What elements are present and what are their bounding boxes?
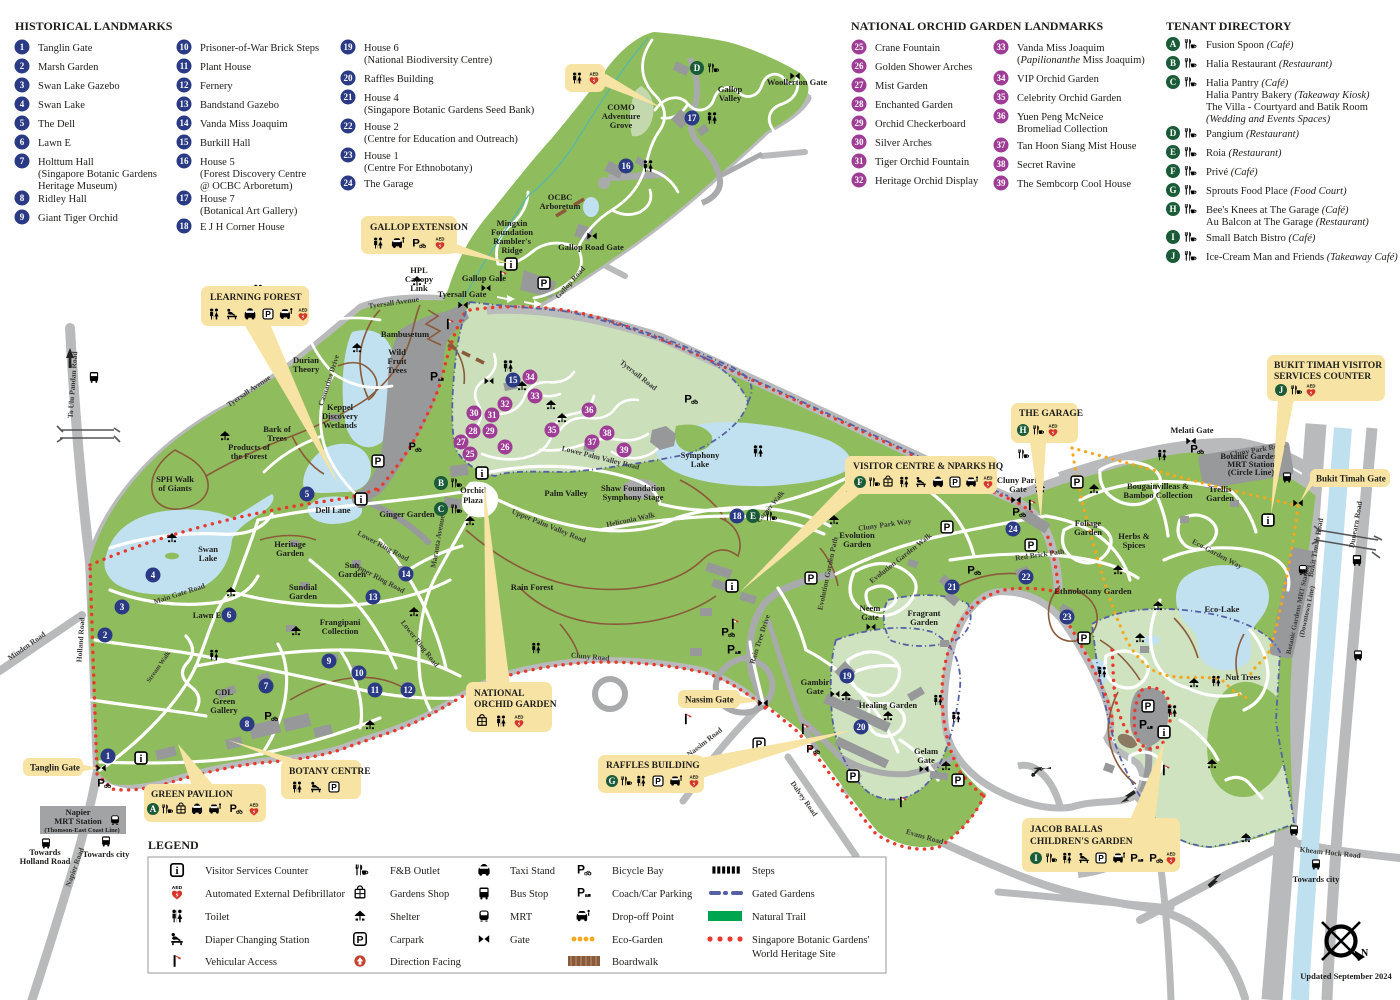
svg-text:Tyersall Gate: Tyersall Gate (438, 289, 487, 299)
svg-text:37: 37 (997, 140, 1007, 150)
svg-text:Direction Facing: Direction Facing (390, 957, 462, 968)
svg-text:12: 12 (404, 685, 414, 695)
svg-text:29: 29 (486, 426, 496, 436)
svg-text:Ridley Hall: Ridley Hall (38, 194, 87, 205)
svg-text:Gardens Shop: Gardens Shop (390, 889, 449, 900)
svg-text:Updated September 2024: Updated September 2024 (1300, 971, 1392, 981)
svg-text:Diaper Changing Station: Diaper Changing Station (205, 935, 310, 946)
svg-text:36: 36 (997, 111, 1007, 121)
svg-text:Gallop Road Gate: Gallop Road Gate (558, 242, 624, 252)
svg-text:24: 24 (344, 178, 354, 188)
svg-text:3: 3 (20, 80, 25, 90)
svg-text:10: 10 (180, 42, 190, 52)
svg-text:7: 7 (264, 681, 269, 691)
svg-text:Plaza: Plaza (463, 495, 484, 505)
svg-text:5: 5 (20, 118, 25, 128)
svg-text:Pangium (Restaurant): Pangium (Restaurant) (1206, 129, 1300, 140)
svg-text:Holland Road: Holland Road (20, 856, 71, 866)
svg-text:(Singapore Botanic Gardens: (Singapore Botanic Gardens (38, 169, 157, 180)
svg-text:(Circle Line): (Circle Line) (1228, 467, 1275, 477)
svg-text:22: 22 (1022, 572, 1032, 582)
svg-text:Raffles Building: Raffles Building (364, 74, 434, 85)
svg-text:N: N (1361, 948, 1369, 959)
svg-text:Towards city: Towards city (83, 849, 130, 859)
svg-text:Visitor Services Counter: Visitor Services Counter (205, 866, 309, 877)
svg-text:Holttum Hall: Holttum Hall (38, 157, 94, 168)
svg-text:39: 39 (997, 178, 1007, 188)
svg-text:Nut Trees: Nut Trees (1225, 672, 1261, 682)
svg-text:25: 25 (466, 449, 476, 459)
svg-text:I: I (1034, 853, 1038, 863)
svg-text:8: 8 (245, 719, 250, 729)
svg-text:J: J (1171, 251, 1176, 261)
svg-text:21: 21 (948, 582, 958, 592)
svg-text:33: 33 (531, 391, 541, 401)
svg-text:Gated Gardens: Gated Gardens (752, 889, 815, 900)
svg-text:SERVICES COUNTER: SERVICES COUNTER (1274, 372, 1371, 382)
svg-text:Vanda Miss Joaquim: Vanda Miss Joaquim (200, 119, 288, 130)
svg-text:House 1: House 1 (364, 151, 399, 162)
svg-text:VIP Orchid Garden: VIP Orchid Garden (1017, 74, 1100, 85)
svg-text:32: 32 (855, 175, 865, 185)
svg-text:Bus Stop: Bus Stop (510, 889, 548, 900)
svg-text:House 6: House 6 (364, 43, 399, 54)
svg-text:17: 17 (180, 193, 190, 203)
svg-text:Prisoner-of-War Brick Steps: Prisoner-of-War Brick Steps (200, 43, 319, 54)
svg-text:MRT: MRT (510, 912, 533, 923)
svg-text:Roia (Restaurant): Roia (Restaurant) (1206, 148, 1282, 159)
svg-text:(National Biodiversity Centre): (National Biodiversity Centre) (364, 55, 493, 66)
svg-text:32: 32 (501, 399, 511, 409)
svg-text:Dell Lane: Dell Lane (315, 505, 350, 515)
svg-text:GREEN PAVILION: GREEN PAVILION (151, 790, 233, 800)
svg-text:C: C (1170, 77, 1177, 87)
svg-text:Vanda Miss Joaquim: Vanda Miss Joaquim (1017, 43, 1105, 54)
svg-text:Eco-Garden: Eco-Garden (612, 935, 663, 946)
svg-text:(Wedding and Events Spaces): (Wedding and Events Spaces) (1206, 114, 1331, 125)
svg-text:7: 7 (20, 156, 25, 166)
svg-text:Automated External Defibrillat: Automated External Defibrillator (205, 889, 345, 900)
svg-text:26: 26 (855, 61, 865, 71)
svg-text:VISITOR CENTRE & NPARKS HQ: VISITOR CENTRE & NPARKS HQ (853, 462, 1003, 472)
svg-text:Crane Fountain: Crane Fountain (875, 43, 941, 54)
svg-text:Swan Lake Gazebo: Swan Lake Gazebo (38, 81, 120, 92)
svg-text:19: 19 (843, 671, 853, 681)
svg-text:37: 37 (588, 437, 598, 447)
svg-text:Singapore Botanic Gardens': Singapore Botanic Gardens' (752, 935, 869, 946)
svg-text:Garden: Garden (289, 591, 317, 601)
svg-text:Tanglin Gate: Tanglin Gate (30, 763, 80, 773)
svg-text:of Giants: of Giants (158, 483, 192, 493)
svg-text:F: F (1170, 166, 1176, 176)
svg-text:34: 34 (526, 372, 536, 382)
svg-text:Trees: Trees (387, 365, 407, 375)
svg-text:Valley: Valley (719, 93, 742, 103)
svg-text:J: J (1279, 385, 1284, 395)
svg-text:Gate: Gate (1009, 484, 1027, 494)
svg-text:16: 16 (180, 156, 190, 166)
svg-text:House 4: House 4 (364, 93, 399, 104)
svg-text:F&B Outlet: F&B Outlet (390, 866, 440, 877)
svg-text:Palm Valley: Palm Valley (544, 488, 588, 498)
svg-text:Bicycle Bay: Bicycle Bay (612, 866, 664, 877)
svg-text:18: 18 (180, 221, 190, 231)
svg-text:38: 38 (997, 159, 1007, 169)
svg-text:12: 12 (180, 80, 190, 90)
svg-text:Garden: Garden (276, 548, 304, 558)
svg-text:@ OCBC Arboretum): @ OCBC Arboretum) (200, 181, 293, 192)
svg-text:Tan Hoon Siang Mist House: Tan Hoon Siang Mist House (1017, 141, 1137, 152)
svg-text:Shelter: Shelter (390, 912, 420, 923)
svg-text:34: 34 (997, 73, 1007, 83)
svg-text:Sprouts Food Place (Food Court: Sprouts Food Place (Food Court) (1206, 186, 1347, 197)
svg-text:Spices: Spices (1123, 540, 1146, 550)
svg-text:I: I (1171, 232, 1175, 242)
svg-text:Melati Gate: Melati Gate (1170, 425, 1213, 435)
svg-text:Theory: Theory (293, 364, 320, 374)
svg-text:13: 13 (180, 99, 190, 109)
svg-text:Garden: Garden (1206, 493, 1234, 503)
svg-text:Towards city: Towards city (1293, 874, 1340, 884)
svg-text:14: 14 (180, 118, 190, 128)
svg-text:Carpark: Carpark (390, 935, 425, 946)
svg-text:LEGEND: LEGEND (148, 838, 199, 852)
svg-text:Ginger Garden: Ginger Garden (379, 509, 435, 519)
svg-text:Healing Garden: Healing Garden (859, 700, 918, 710)
svg-text:(Centre For Ethnobotany): (Centre For Ethnobotany) (364, 163, 473, 174)
svg-text:Celebrity Orchid Garden: Celebrity Orchid Garden (1017, 93, 1122, 104)
svg-text:RAFFLES BUILDING: RAFFLES BUILDING (606, 761, 700, 771)
svg-text:25: 25 (855, 42, 865, 52)
svg-text:Bamboo Collection: Bamboo Collection (1123, 490, 1192, 500)
svg-text:1: 1 (106, 751, 111, 761)
svg-text:ORCHID GARDEN: ORCHID GARDEN (474, 700, 557, 710)
svg-text:Symphony Stage: Symphony Stage (603, 492, 664, 502)
svg-text:Natural Trail: Natural Trail (752, 912, 806, 923)
svg-text:Bee's Knees at The Garage (Caf: Bee's Knees at The Garage (Café) (1206, 205, 1349, 216)
svg-text:Fernery: Fernery (200, 81, 233, 92)
svg-text:Collection: Collection (322, 626, 359, 636)
svg-text:Gallop Gate: Gallop Gate (462, 273, 506, 283)
svg-text:Grove: Grove (610, 120, 633, 130)
svg-text:Swan Lake: Swan Lake (38, 100, 85, 111)
svg-text:Garden: Garden (910, 617, 938, 627)
svg-text:(Singapore Botanic Gardens See: (Singapore Botanic Gardens Seed Bank) (364, 105, 535, 116)
svg-text:NATIONAL: NATIONAL (474, 689, 525, 699)
svg-text:30: 30 (470, 408, 480, 418)
svg-text:(Forest Discovery Centre: (Forest Discovery Centre (200, 169, 306, 180)
svg-text:B: B (438, 478, 444, 488)
svg-text:HISTORICAL LANDMARKS: HISTORICAL LANDMARKS (15, 19, 173, 33)
svg-text:Secret Ravine: Secret Ravine (1017, 160, 1076, 171)
svg-text:17: 17 (688, 113, 698, 123)
svg-text:27: 27 (457, 437, 467, 447)
svg-text:Garden: Garden (1074, 527, 1102, 537)
svg-text:The Dell: The Dell (38, 119, 75, 130)
svg-text:E J H Corner House: E J H Corner House (200, 222, 285, 233)
svg-text:23: 23 (1063, 612, 1073, 622)
svg-text:(Botanical Art Gallery): (Botanical Art Gallery) (200, 206, 298, 217)
svg-text:20: 20 (857, 722, 867, 732)
svg-text:Lawn E: Lawn E (38, 138, 71, 149)
svg-text:16: 16 (622, 161, 632, 171)
svg-text:Toilet: Toilet (205, 912, 229, 923)
svg-text:H: H (1019, 425, 1026, 435)
svg-text:MRT Station: MRT Station (54, 816, 102, 826)
svg-text:Gate: Gate (806, 686, 824, 696)
svg-text:9: 9 (20, 212, 25, 222)
svg-text:B: B (1170, 58, 1176, 68)
svg-text:Eco-Lake: Eco-Lake (1205, 604, 1240, 614)
svg-text:Privé (Café): Privé (Café) (1206, 167, 1258, 178)
svg-text:24: 24 (1009, 524, 1019, 534)
svg-text:Yuen Peng McNeice: Yuen Peng McNeice (1017, 112, 1104, 123)
svg-text:Plant House: Plant House (200, 62, 251, 73)
svg-text:5: 5 (305, 489, 310, 499)
svg-text:15: 15 (509, 375, 519, 385)
svg-text:CHILDREN'S GARDEN: CHILDREN'S GARDEN (1030, 837, 1133, 847)
svg-text:15: 15 (180, 137, 190, 147)
svg-text:10: 10 (355, 668, 365, 678)
svg-text:29: 29 (855, 118, 865, 128)
svg-text:36: 36 (585, 405, 595, 415)
svg-text:4: 4 (151, 570, 156, 580)
svg-text:Link: Link (410, 283, 428, 293)
svg-text:Gallery: Gallery (210, 705, 238, 715)
svg-text:Golden Shower Arches: Golden Shower Arches (875, 62, 972, 73)
svg-text:Arboretum: Arboretum (540, 201, 581, 211)
svg-text:Steps: Steps (752, 866, 775, 877)
svg-text:Coach/Car Parking: Coach/Car Parking (612, 889, 693, 900)
svg-text:11: 11 (180, 61, 189, 71)
svg-text:27: 27 (855, 80, 865, 90)
svg-text:20: 20 (344, 73, 354, 83)
svg-text:19: 19 (344, 42, 354, 52)
svg-text:THE GARAGE: THE GARAGE (1019, 409, 1083, 419)
svg-text:H: H (1169, 204, 1176, 214)
svg-text:BUKIT TIMAH VISITOR: BUKIT TIMAH VISITOR (1274, 361, 1382, 371)
svg-text:23: 23 (344, 150, 354, 160)
svg-text:G: G (608, 776, 615, 786)
svg-text:Bukit Timah Gate: Bukit Timah Gate (1316, 474, 1386, 484)
svg-text:Garden: Garden (843, 539, 871, 549)
svg-text:Small Batch Bistro (Café): Small Batch Bistro (Café) (1206, 233, 1316, 244)
svg-text:Orchid: Orchid (460, 485, 486, 495)
svg-text:Bandstand Gazebo: Bandstand Gazebo (200, 100, 279, 111)
svg-text:The Sembcorp Cool House: The Sembcorp Cool House (1017, 179, 1131, 190)
svg-text:31: 31 (855, 156, 865, 166)
svg-text:F: F (857, 477, 863, 487)
svg-text:Lawn E: Lawn E (193, 610, 222, 620)
svg-text:4: 4 (20, 99, 25, 109)
svg-text:Giant Tiger Orchid: Giant Tiger Orchid (38, 213, 119, 224)
svg-text:GALLOP EXTENSION: GALLOP EXTENSION (370, 223, 468, 233)
svg-text:Heritage Orchid Display: Heritage Orchid Display (875, 176, 979, 187)
svg-text:28: 28 (469, 426, 479, 436)
svg-text:Halia Restaurant (Restaurant): Halia Restaurant (Restaurant) (1206, 59, 1332, 70)
svg-text:Heritage Museum): Heritage Museum) (38, 181, 118, 192)
svg-text:D: D (694, 63, 701, 73)
svg-text:(Thomson-East Coast Line): (Thomson-East Coast Line) (44, 827, 119, 834)
svg-text:(Centre for Education and Outr: (Centre for Education and Outreach) (364, 134, 518, 145)
svg-text:13: 13 (369, 592, 379, 602)
svg-text:Drop-off Point: Drop-off Point (612, 912, 674, 923)
svg-text:Ice-Cream Man and Friends (Tak: Ice-Cream Man and Friends (Takeaway Café… (1206, 252, 1398, 263)
svg-text:2: 2 (103, 630, 108, 640)
svg-text:World Heritage Site: World Heritage Site (752, 949, 836, 960)
svg-text:Ethnobotany Garden: Ethnobotany Garden (1054, 586, 1131, 596)
svg-text:Lake: Lake (691, 459, 710, 469)
svg-text:A: A (150, 804, 157, 814)
svg-text:33: 33 (997, 42, 1007, 52)
svg-text:NATIONAL ORCHID GARDEN LANDMAR: NATIONAL ORCHID GARDEN LANDMARKS (851, 19, 1103, 33)
svg-text:38: 38 (603, 428, 613, 438)
svg-text:Boardwalk: Boardwalk (612, 957, 659, 968)
svg-text:Gate: Gate (917, 755, 935, 765)
svg-text:Bromeliad Collection: Bromeliad Collection (1017, 124, 1108, 135)
svg-text:Taxi Stand: Taxi Stand (510, 866, 556, 877)
svg-text:Burkill Hall: Burkill Hall (200, 138, 251, 149)
svg-text:House 7: House 7 (200, 194, 235, 205)
svg-text:Gate: Gate (510, 935, 530, 946)
svg-text:Enchanted Garden: Enchanted Garden (875, 100, 954, 111)
svg-text:LEARNING FOREST: LEARNING FOREST (210, 293, 302, 303)
svg-text:1: 1 (20, 42, 25, 52)
svg-text:39: 39 (620, 445, 630, 455)
svg-text:Fusion Spoon (Café): Fusion Spoon (Café) (1206, 40, 1294, 51)
svg-text:6: 6 (227, 610, 232, 620)
svg-text:House 5: House 5 (200, 157, 235, 168)
svg-text:31: 31 (488, 410, 498, 420)
svg-text:C: C (438, 504, 445, 514)
svg-text:Marsh Garden: Marsh Garden (38, 62, 99, 73)
svg-text:14: 14 (402, 569, 412, 579)
svg-text:Bambusetum: Bambusetum (381, 329, 429, 339)
svg-text:E: E (1170, 147, 1176, 157)
svg-text:Gate: Gate (861, 612, 879, 622)
svg-text:A: A (1170, 39, 1177, 49)
svg-text:TENANT DIRECTORY: TENANT DIRECTORY (1166, 19, 1292, 33)
svg-text:Halia Pantry Bakery (Takeaway: Halia Pantry Bakery (Takeaway Kiosk) (1206, 90, 1370, 101)
svg-text:35: 35 (548, 425, 558, 435)
svg-text:Ridge: Ridge (501, 245, 522, 255)
svg-text:Halia Pantry (Café): Halia Pantry (Café) (1206, 78, 1289, 89)
svg-text:BOTANY CENTRE: BOTANY CENTRE (289, 767, 371, 777)
svg-text:30: 30 (855, 137, 865, 147)
svg-text:22: 22 (344, 121, 354, 131)
svg-text:Rain Forest: Rain Forest (511, 582, 554, 592)
svg-text:Au Balcon at The Garage (Resta: Au Balcon at The Garage (Restaurant) (1206, 217, 1369, 228)
svg-text:35: 35 (997, 92, 1007, 102)
svg-text:The Garage: The Garage (364, 179, 414, 190)
svg-text:JACOB BALLAS: JACOB BALLAS (1030, 825, 1103, 835)
svg-text:Trees: Trees (267, 433, 287, 443)
svg-text:6: 6 (20, 137, 25, 147)
svg-text:G: G (1169, 185, 1176, 195)
svg-text:Wetlands: Wetlands (323, 420, 358, 430)
svg-text:11: 11 (371, 685, 380, 695)
svg-text:House 2: House 2 (364, 122, 399, 133)
svg-text:26: 26 (501, 442, 511, 452)
svg-text:Nassim Gate: Nassim Gate (685, 695, 734, 705)
svg-text:18: 18 (733, 511, 743, 521)
svg-text:(Papilionanthe Miss Joaquim): (Papilionanthe Miss Joaquim) (1017, 55, 1145, 66)
svg-text:21: 21 (344, 92, 354, 102)
svg-text:Orchid Checkerboard: Orchid Checkerboard (875, 119, 966, 130)
svg-text:Tiger Orchid Fountain: Tiger Orchid Fountain (875, 157, 970, 168)
svg-text:Tanglin Gate: Tanglin Gate (38, 43, 93, 54)
svg-text:Vehicular Access: Vehicular Access (205, 957, 277, 968)
svg-text:8: 8 (20, 193, 25, 203)
svg-text:9: 9 (327, 656, 332, 666)
svg-text:Mist Garden: Mist Garden (875, 81, 929, 92)
svg-text:2: 2 (20, 61, 25, 71)
svg-text:Lake: Lake (199, 553, 218, 563)
svg-text:D: D (1170, 128, 1177, 138)
svg-text:The Villa - Courtyard and Bati: The Villa - Courtyard and Batik Room (1206, 102, 1368, 113)
svg-text:Woollerton Gate: Woollerton Gate (767, 77, 827, 87)
svg-text:28: 28 (855, 99, 865, 109)
svg-text:the Forest: the Forest (231, 451, 268, 461)
svg-text:3: 3 (120, 602, 125, 612)
svg-text:Silver Arches: Silver Arches (875, 138, 932, 149)
